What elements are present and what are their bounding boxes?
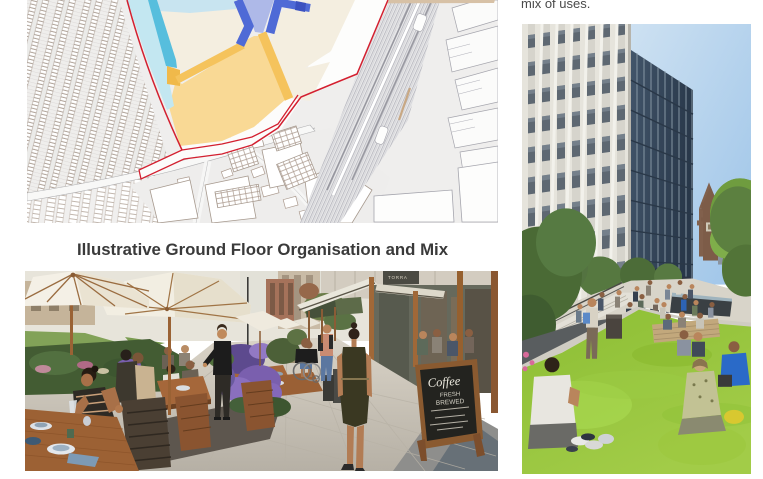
svg-text:Coffee: Coffee <box>427 374 461 390</box>
svg-text:TORRA: TORRA <box>388 275 408 280</box>
